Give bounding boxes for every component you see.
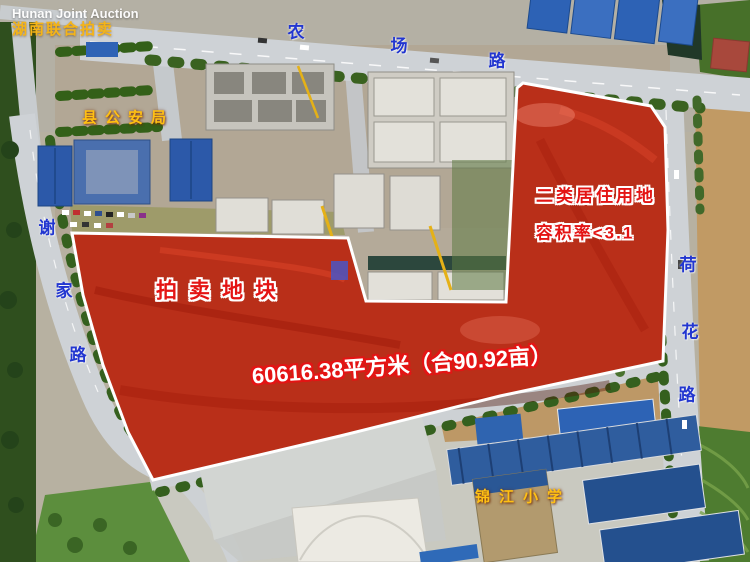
parcel-plot-ratio-label: 容积率<3.1 <box>536 225 635 242</box>
watermark: Hunan Joint Auction 湖南联合拍卖 <box>12 7 139 37</box>
road-label-nongchang-char3: 路 <box>489 47 506 72</box>
parcel-title-label: 拍卖地块 <box>156 281 288 302</box>
road-label-hehua-char3: 路 <box>679 381 696 406</box>
gym-building <box>292 498 428 562</box>
road-label-xiejia-char3: 路 <box>70 341 87 366</box>
road-label-nongchang-char2: 场 <box>391 32 408 57</box>
map-base <box>0 0 750 562</box>
road-label-hehua-char1: 荷 <box>680 251 697 276</box>
landmark-school-label: 锦江小学 <box>475 490 571 505</box>
road-label-xiejia-char1: 谢 <box>39 214 56 239</box>
watermark-en: Hunan Joint Auction <box>12 7 139 20</box>
blue-shed <box>331 261 348 280</box>
red-roof-house <box>711 38 750 72</box>
aerial-map: Hunan Joint Auction 湖南联合拍卖 拍卖地块 二类居住用地 容… <box>0 0 750 562</box>
road-label-hehua-char2: 花 <box>682 318 699 343</box>
parcel-zoning-label: 二类居住用地 <box>536 188 656 205</box>
watermark-cn: 湖南联合拍卖 <box>12 22 139 37</box>
gate-building <box>86 42 118 57</box>
road-label-xiejia-char2: 家 <box>56 277 73 302</box>
road-label-nongchang-char1: 农 <box>288 18 305 43</box>
landmark-police-bureau-label: 县公安局 <box>82 111 174 126</box>
